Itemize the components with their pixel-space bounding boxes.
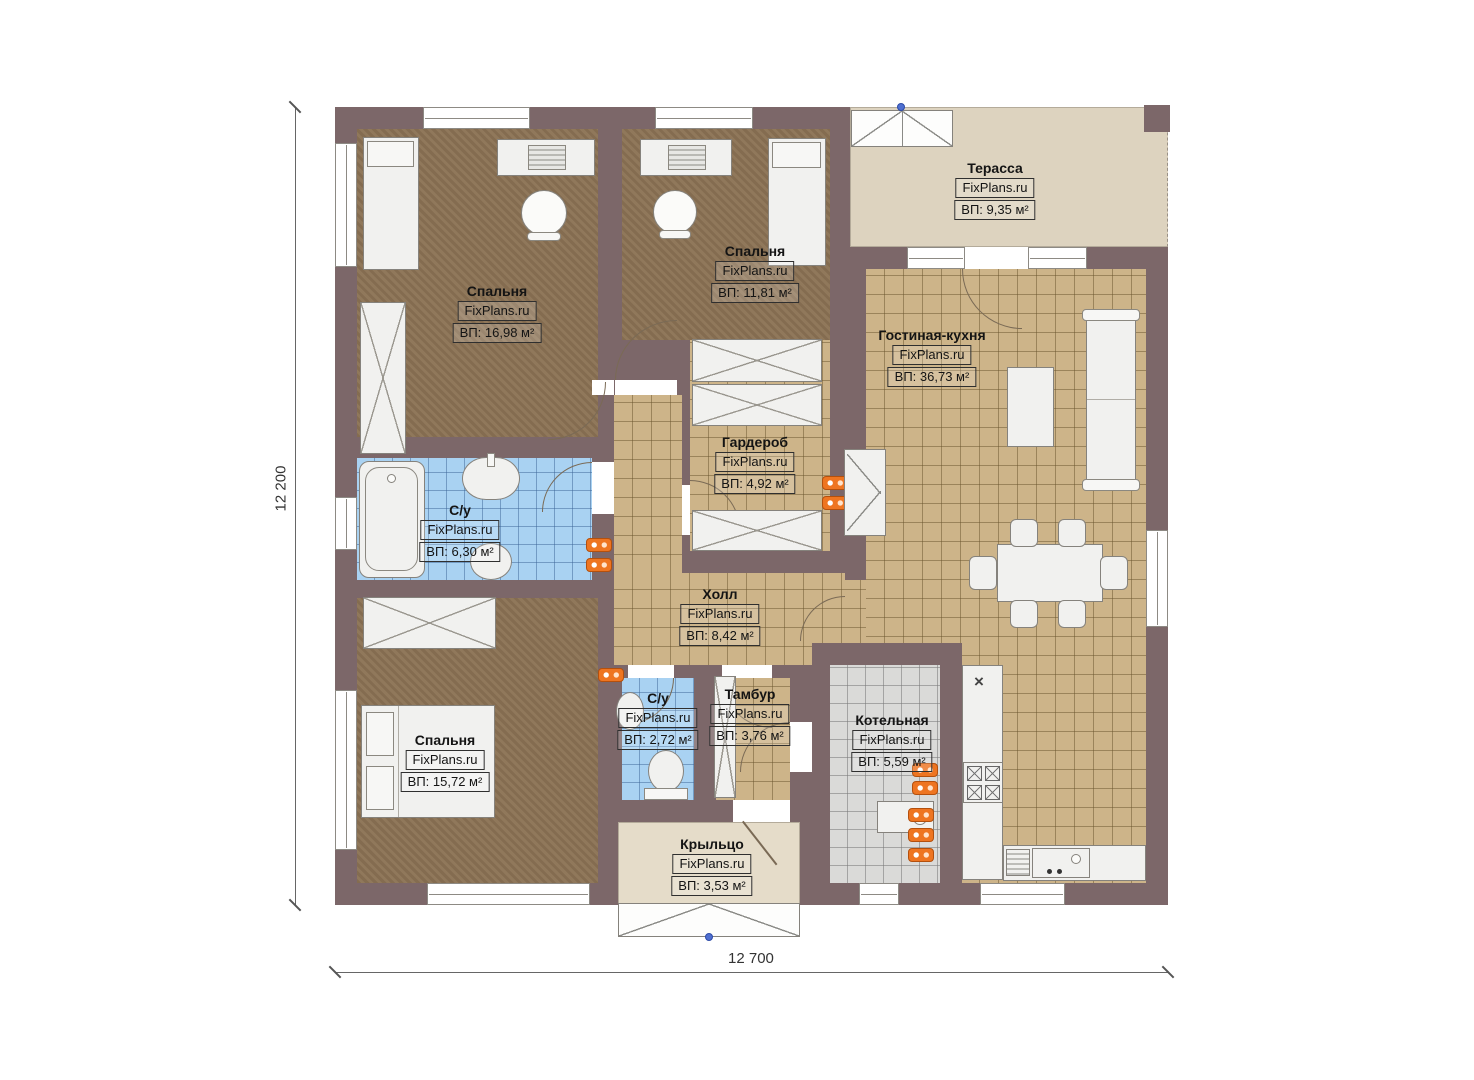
kitchen-sink-icon (1032, 848, 1090, 878)
room-label-bedroom-3: Спальня FixPlans.ru ВП: 15,72 м² (401, 732, 490, 792)
room-name: Гостиная-кухня (878, 327, 985, 343)
room-label-bedroom-1: Спальня FixPlans.ru ВП: 16,98 м² (453, 283, 542, 343)
dining-chair-icon (1058, 519, 1086, 547)
window-bottom-bedroom-3 (427, 883, 590, 905)
closet-icon (692, 339, 822, 382)
room-watermark: FixPlans.ru (618, 708, 697, 728)
wardrobe-icon (363, 597, 496, 649)
window-left-bedroom-1 (335, 143, 357, 267)
dimension-line-horizontal (335, 972, 1168, 973)
room-label-living-kitchen: Гостиная-кухня FixPlans.ru ВП: 36,73 м² (878, 327, 985, 387)
room-label-terrace: Терасса FixPlans.ru ВП: 9,35 м² (954, 160, 1035, 220)
room-label-bathroom-1: С/у FixPlans.ru ВП: 6,30 м² (419, 502, 500, 562)
floor-plan-page: × Спальня FixPlans.ru ВП: 16,98 м² Спаль… (0, 0, 1474, 1080)
window-left-bedroom-3 (335, 690, 357, 850)
dining-chair-icon (1100, 556, 1128, 590)
room-area: ВП: 15,72 м² (401, 772, 490, 792)
room-area: ВП: 4,92 м² (714, 474, 795, 494)
window-terrace-left (907, 247, 965, 269)
room-name: С/у (647, 690, 669, 706)
radiator-icon (908, 808, 934, 822)
window-right-living (1146, 530, 1168, 627)
room-watermark: FixPlans.ru (420, 520, 499, 540)
door-opening-boiler (790, 722, 812, 772)
room-watermark: FixPlans.ru (405, 750, 484, 770)
wall-boiler-top (812, 643, 962, 665)
room-label-hall: Холл FixPlans.ru ВП: 8,42 м² (679, 586, 760, 646)
room-area: ВП: 11,81 м² (711, 283, 799, 303)
window-left-bathroom-1 (335, 497, 357, 550)
office-chair-base (527, 232, 561, 241)
desk-icon (640, 139, 732, 176)
dish-drainer-icon (1006, 849, 1030, 876)
room-watermark: FixPlans.ru (892, 345, 971, 365)
room-name: С/у (449, 502, 471, 518)
wardrobe-icon (360, 302, 406, 454)
room-name: Холл (702, 586, 737, 602)
room-area: ВП: 8,42 м² (679, 626, 760, 646)
radiator-icon (908, 848, 934, 862)
wall-wardrobe-bottom (682, 551, 830, 573)
vent-icon: × (974, 672, 984, 692)
sofa-armrest (1082, 479, 1140, 491)
room-name: Крыльцо (680, 836, 744, 852)
window-bottom-kitchen (980, 883, 1065, 905)
desk-icon (497, 139, 595, 176)
room-label-wardrobe: Гардероб FixPlans.ru ВП: 4,92 м² (714, 434, 795, 494)
dining-chair-icon (1010, 519, 1038, 547)
dining-table-icon (997, 544, 1103, 602)
door-opening-bathroom-2 (628, 665, 674, 678)
room-area: ВП: 9,35 м² (954, 200, 1035, 220)
room-name: Котельная (855, 712, 928, 728)
room-area: ВП: 36,73 м² (888, 367, 977, 387)
radiator-icon (586, 558, 612, 572)
room-area: ВП: 5,59 м² (851, 752, 932, 772)
radiator-icon (912, 781, 938, 795)
radiator-icon (586, 538, 612, 552)
closet-icon (692, 384, 822, 426)
dimension-label-height: 12 200 (272, 466, 289, 512)
dimension-line-vertical (295, 107, 296, 905)
stove-icon (963, 762, 1003, 803)
room-area: ВП: 3,53 м² (671, 876, 752, 896)
window-top-bedroom-1 (423, 107, 530, 129)
room-name: Спальня (415, 732, 475, 748)
dining-chair-icon (969, 556, 997, 590)
door-opening-entrance (733, 800, 790, 822)
room-name: Тамбур (725, 686, 776, 702)
room-watermark: FixPlans.ru (715, 452, 794, 472)
room-name: Спальня (467, 283, 527, 299)
hall-corridor-floor (614, 395, 682, 573)
room-name: Гардероб (722, 434, 788, 450)
porch-steps (618, 903, 800, 937)
sofa-icon (1086, 315, 1136, 483)
room-watermark: FixPlans.ru (710, 704, 789, 724)
room-watermark: FixPlans.ru (680, 604, 759, 624)
sink-tap (487, 453, 495, 467)
toilet-tank (644, 788, 688, 800)
office-chair-icon (653, 190, 697, 234)
door-opening-terrace (965, 247, 1028, 269)
terrace-steps (851, 110, 953, 147)
room-label-bathroom-2: С/у FixPlans.ru ВП: 2,72 м² (617, 690, 698, 750)
fireplace-icon (844, 449, 886, 536)
dining-chair-icon (1058, 600, 1086, 628)
room-label-porch: Крыльцо FixPlans.ru ВП: 3,53 м² (671, 836, 752, 896)
room-area: ВП: 2,72 м² (617, 730, 698, 750)
sofa-armrest (1082, 309, 1140, 321)
room-watermark: FixPlans.ru (955, 178, 1034, 198)
entry-marker-dot (705, 933, 713, 941)
radiator-icon (598, 668, 624, 682)
bathtub-icon (359, 461, 425, 578)
room-watermark: FixPlans.ru (672, 854, 751, 874)
door-opening-wardrobe (682, 485, 690, 535)
terrace-column (1144, 105, 1170, 132)
office-chair-base (659, 230, 691, 239)
room-area: ВП: 6,30 м² (419, 542, 500, 562)
room-name: Терасса (967, 160, 1023, 176)
room-area: ВП: 16,98 м² (453, 323, 542, 343)
room-name: Спальня (725, 243, 785, 259)
door-opening-bedroom-2 (615, 380, 677, 395)
bed-icon (363, 137, 419, 270)
coffee-table-icon (1007, 367, 1054, 447)
office-chair-icon (521, 190, 567, 236)
room-label-bedroom-2: Спальня FixPlans.ru ВП: 11,81 м² (711, 243, 799, 303)
room-watermark: FixPlans.ru (715, 261, 794, 281)
window-top-bedroom-2 (655, 107, 753, 129)
room-label-boiler-room: Котельная FixPlans.ru ВП: 5,59 м² (851, 712, 932, 772)
room-watermark: FixPlans.ru (852, 730, 931, 750)
closet-icon (692, 510, 822, 551)
room-watermark: FixPlans.ru (457, 301, 536, 321)
toilet-icon (648, 750, 684, 792)
room-label-vestibule: Тамбур FixPlans.ru ВП: 3,76 м² (709, 686, 790, 746)
room-area: ВП: 3,76 м² (709, 726, 790, 746)
dining-chair-icon (1010, 600, 1038, 628)
radiator-icon (908, 828, 934, 842)
window-bottom-boiler (859, 883, 899, 905)
entry-marker-dot (897, 103, 905, 111)
door-opening-bathroom-1 (592, 462, 614, 514)
window-terrace-right (1028, 247, 1087, 269)
wall-boiler-right (940, 665, 962, 883)
dimension-label-width: 12 700 (728, 950, 774, 967)
